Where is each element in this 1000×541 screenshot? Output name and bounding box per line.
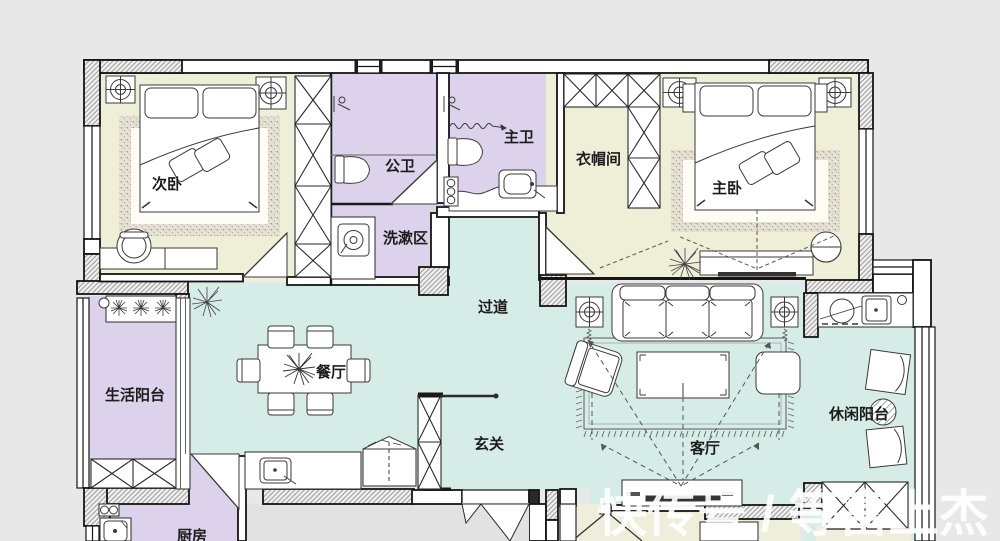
svg-text:厨房: 厨房 [177,527,207,541]
svg-text:客厅: 客厅 [689,439,720,457]
svg-text:过道: 过道 [478,298,508,316]
svg-text:次卧: 次卧 [152,175,182,193]
svg-text:休闲阳台: 休闲阳台 [828,405,889,423]
svg-text:餐厅: 餐厅 [316,363,346,381]
svg-text:洗漱区: 洗漱区 [383,229,428,247]
svg-text:主卧: 主卧 [712,179,742,197]
svg-text:主卫: 主卫 [504,128,534,146]
svg-text:衣帽间: 衣帽间 [576,150,621,168]
svg-text:玄关: 玄关 [474,435,504,453]
svg-text:公卫: 公卫 [385,158,415,175]
svg-text:生活阳台: 生活阳台 [105,386,165,404]
svg-text:快传号 / 等富上杰: 快传号 / 等富上杰 [597,486,989,541]
